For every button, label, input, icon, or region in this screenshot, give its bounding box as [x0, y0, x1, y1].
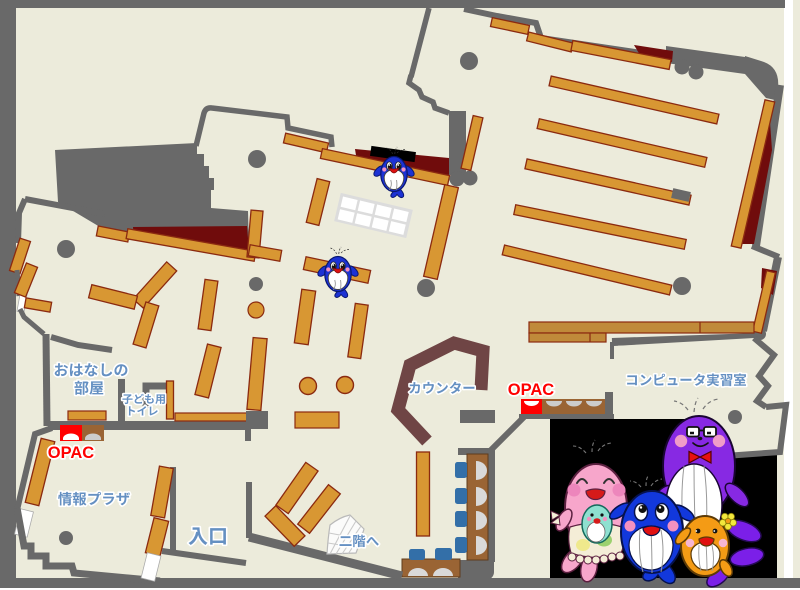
svg-text:OPAC: OPAC — [508, 381, 555, 399]
svg-text:OPAC: OPAC — [48, 444, 95, 462]
